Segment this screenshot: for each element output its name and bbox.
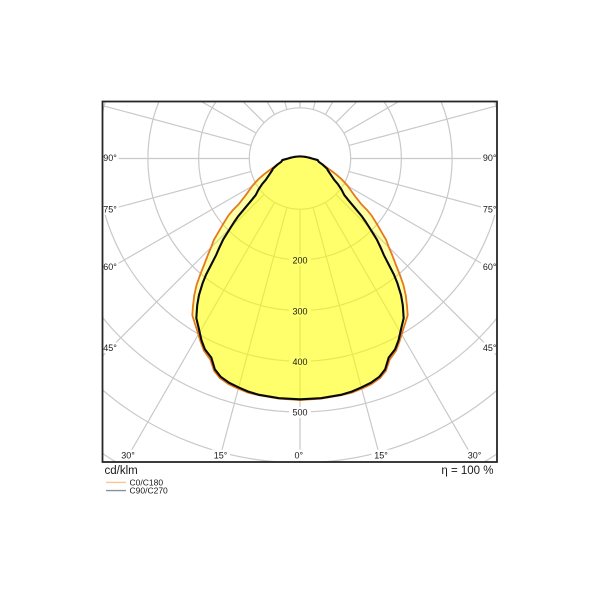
svg-text:60°: 60° [103,262,117,272]
svg-text:0°: 0° [294,451,303,461]
svg-text:400: 400 [292,357,307,367]
svg-text:500: 500 [292,408,307,418]
svg-text:30°: 30° [468,451,482,461]
svg-text:90°: 90° [103,153,117,163]
svg-text:30°: 30° [121,451,135,461]
svg-text:15°: 15° [214,451,228,461]
svg-text:15°: 15° [374,451,388,461]
svg-text:60°: 60° [483,262,497,272]
svg-text:45°: 45° [483,343,497,353]
svg-text:cd/klm: cd/klm [105,465,138,477]
svg-text:75°: 75° [483,205,497,215]
svg-text:75°: 75° [103,205,117,215]
svg-text:C90/C270: C90/C270 [130,486,169,496]
svg-text:η = 100 %: η = 100 % [441,465,493,477]
svg-text:300: 300 [292,307,307,317]
svg-text:200: 200 [292,256,307,266]
svg-text:45°: 45° [103,343,117,353]
svg-text:90°: 90° [483,153,497,163]
